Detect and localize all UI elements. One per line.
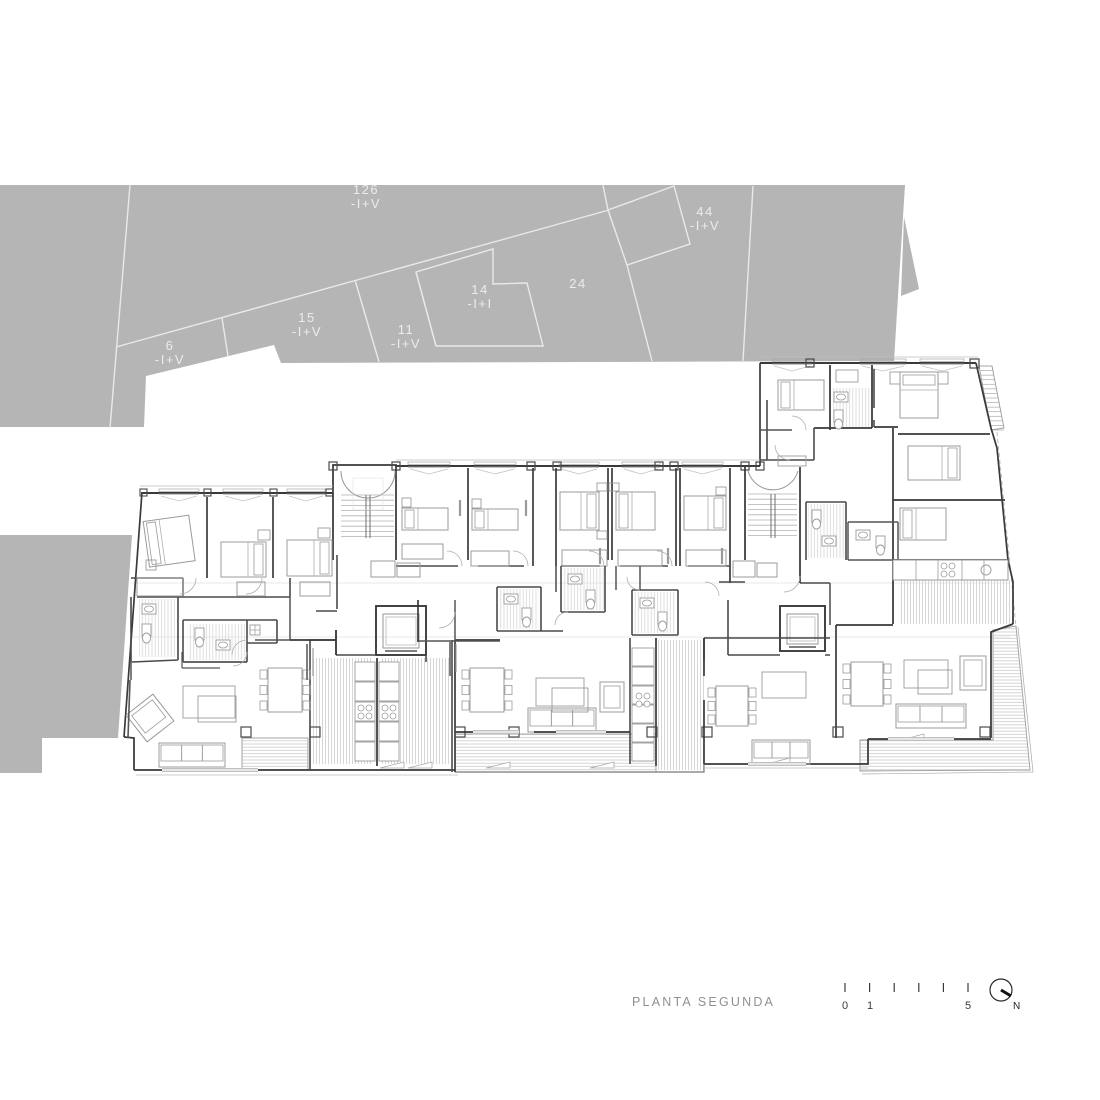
svg-text:-I+I: -I+I — [467, 296, 492, 311]
svg-text:N: N — [1013, 1001, 1020, 1012]
svg-text:5: 5 — [965, 1000, 971, 1012]
svg-text:44: 44 — [696, 204, 713, 219]
svg-text:0: 0 — [842, 1000, 848, 1012]
svg-text:PLANTA SEGUNDA: PLANTA SEGUNDA — [632, 995, 775, 1009]
svg-text:-I+V: -I+V — [391, 336, 421, 351]
svg-text:126: 126 — [353, 182, 379, 197]
svg-text:11: 11 — [398, 322, 415, 337]
svg-text:15: 15 — [298, 310, 315, 325]
svg-text:14: 14 — [471, 282, 488, 297]
svg-text:6: 6 — [166, 338, 175, 353]
svg-text:24: 24 — [569, 276, 586, 291]
svg-text:1: 1 — [867, 1000, 873, 1012]
svg-text:-I+V: -I+V — [690, 218, 720, 233]
svg-text:-I+V: -I+V — [351, 196, 381, 211]
svg-text:-I+V: -I+V — [292, 324, 322, 339]
svg-text:-I+V: -I+V — [155, 352, 185, 367]
